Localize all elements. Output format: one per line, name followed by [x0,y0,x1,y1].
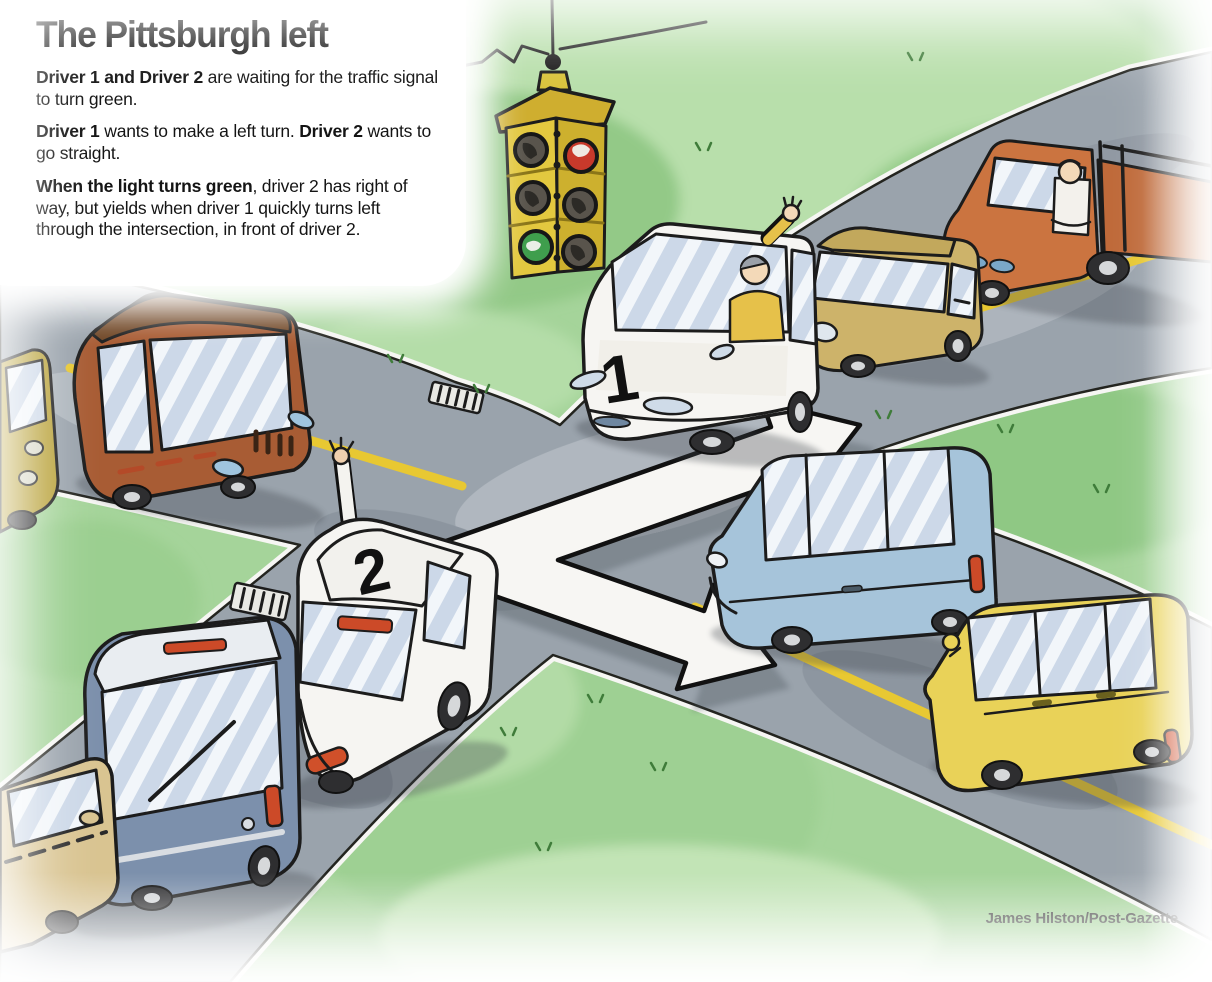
intro-paragraph-2: Driver 1 wants to make a left turn. Driv… [36,121,440,164]
yellow-wagon [925,595,1201,818]
olive-car [0,350,58,532]
explanation-block: The Pittsburgh left Driver 1 and Driver … [36,16,440,252]
bold-light-turns-green: When the light turns green [36,176,252,196]
infographic-pittsburgh-left: 1 2 The Pittsburgh left Driver 1 and Dri… [0,0,1212,982]
bold-driver-1: Driver 1 [36,121,100,141]
signal-hanger [545,54,561,70]
artist-credit: James Hilston/Post-Gazette [986,910,1178,927]
page-title: The Pittsburgh left [36,16,424,54]
bold-driver-2: Driver 2 [299,121,363,141]
brown-car [73,294,327,540]
intro-paragraph-1: Driver 1 and Driver 2 are waiting for th… [36,67,440,110]
text-left-turn: wants to make a left turn. [100,121,300,141]
bold-driver-1-and-2: Driver 1 and Driver 2 [36,67,203,87]
intro-paragraph-3: When the light turns green, driver 2 has… [36,176,440,241]
